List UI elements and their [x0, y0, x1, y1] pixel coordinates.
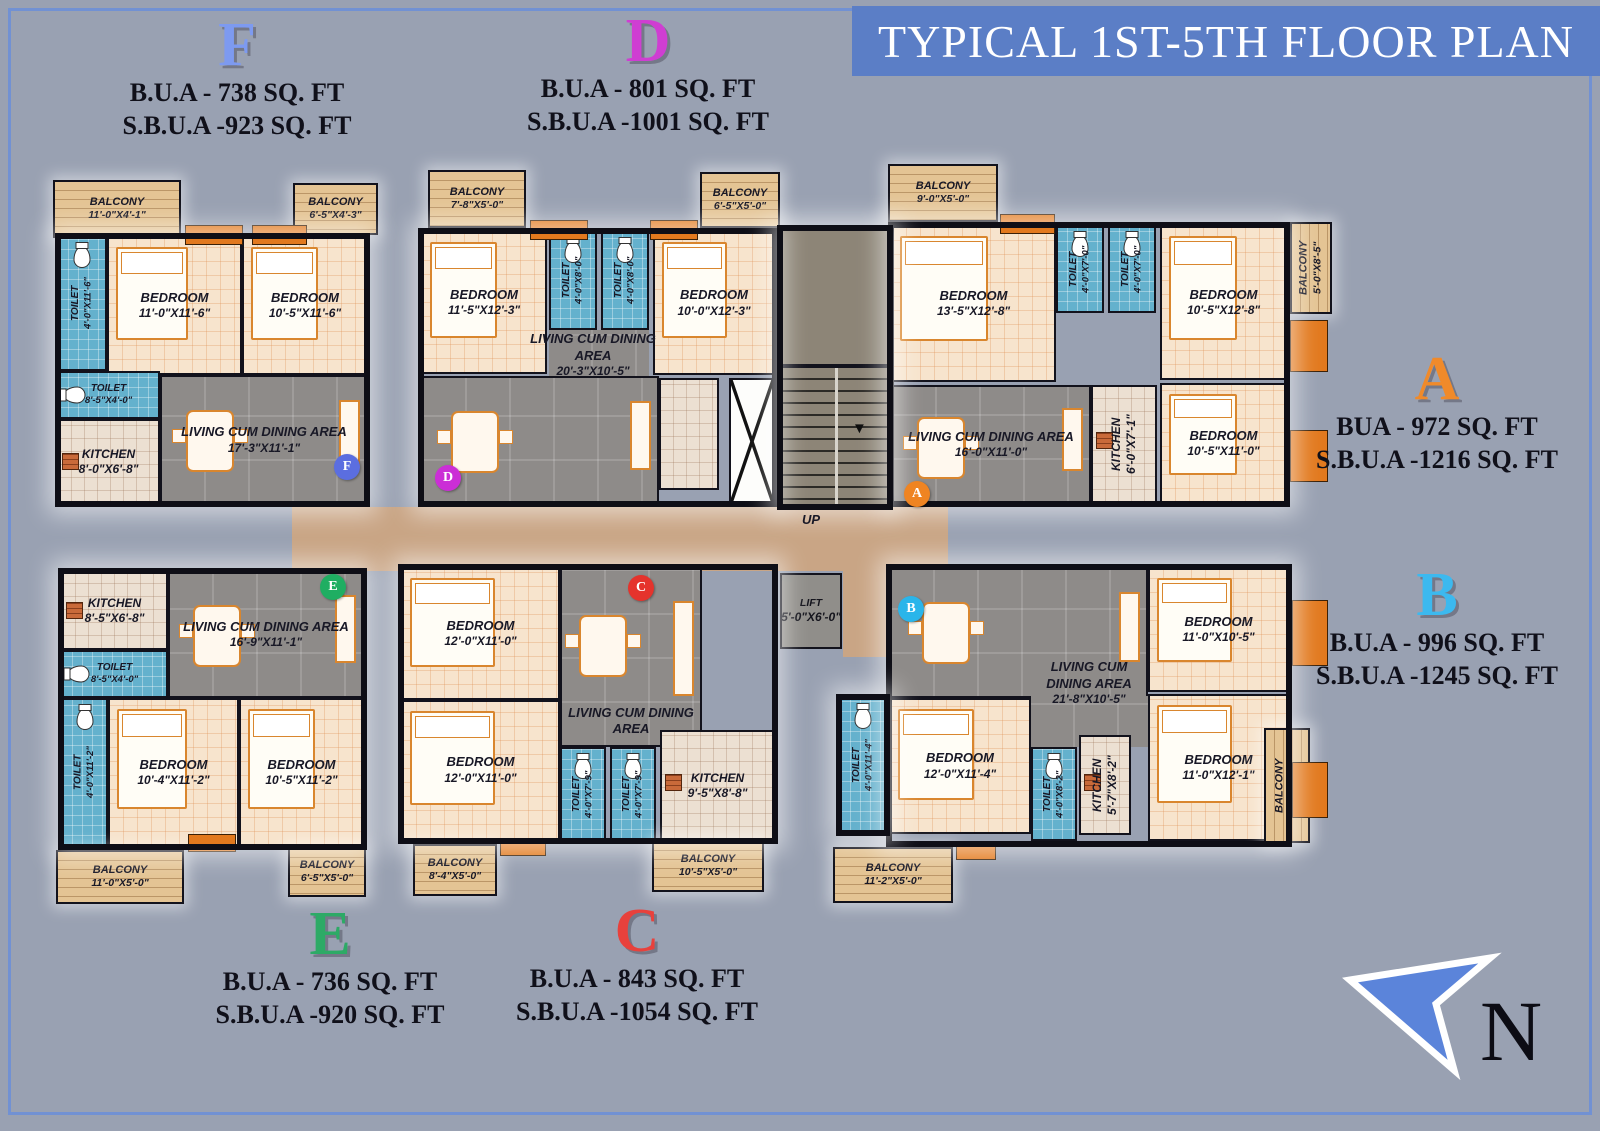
- room-label: BALCONY6'-5"X4'-3": [295, 185, 376, 233]
- room-f-balcony: BALCONY11'-0"X4'-1": [53, 180, 181, 238]
- unit-label-d: D B.U.A - 801 SQ. FT S.B.U.A -1001 SQ. F…: [518, 10, 778, 139]
- north-letter: N: [1480, 983, 1542, 1079]
- unit-sbua-f: S.B.U.A -923 SQ. FT: [107, 109, 367, 142]
- room-b-wall: [836, 694, 890, 836]
- unit-sbua-c: S.B.U.A -1054 SQ. FT: [507, 995, 767, 1028]
- page-title: TYPICAL 1ST-5TH FLOOR PLAN: [852, 6, 1600, 76]
- room-label: LIVING CUM DINING AREA20'-3"X10'-5": [523, 331, 663, 379]
- room-core-lift: LIFT5'-0"X6'-0": [780, 573, 842, 649]
- unit-marker-f: F: [334, 454, 360, 480]
- room-core-cor: [843, 569, 889, 657]
- room-label: LIFT5'-0"X6'-0": [782, 575, 840, 647]
- room-d-balcony: BALCONY6'-5"X5'-0": [700, 172, 780, 228]
- unit-letter-e: E: [200, 903, 460, 965]
- north-arrow-icon: N: [1318, 918, 1568, 1108]
- room-c-balcony: BALCONY8'-4"X5'-0": [413, 844, 497, 896]
- room-a-balcony: BALCONY9'-0"X5'-0": [888, 164, 998, 222]
- room-label: BALCONY8'-4"X5'-0": [415, 846, 495, 894]
- room-f-wall: [55, 233, 370, 507]
- unit-letter-f: F: [107, 14, 367, 76]
- unit-marker-e: E: [320, 574, 346, 600]
- unit-sbua-b: S.B.U.A -1245 SQ. FT: [1307, 659, 1567, 692]
- room-label: BALCONY10'-5"X5'-0": [654, 842, 762, 890]
- unit-sbua-e: S.B.U.A -920 SQ. FT: [200, 998, 460, 1031]
- unit-letter-d: D: [518, 10, 778, 72]
- unit-label-b: B B.U.A - 996 SQ. FT S.B.U.A -1245 SQ. F…: [1307, 564, 1567, 693]
- unit-letter-a: A: [1307, 348, 1567, 410]
- room-label: BALCONY6'-5"X5'-0": [290, 849, 364, 895]
- unit-bua-f: B.U.A - 738 SQ. FT: [107, 76, 367, 109]
- room-d-balcony: BALCONY7'-8"X5'-0": [428, 170, 526, 228]
- room-label: BALCONY11'-2"X5'-0": [835, 849, 951, 901]
- room-a-wall: [888, 222, 1290, 507]
- room-e-balcony: BALCONY11'-0"X5'-0": [56, 850, 184, 904]
- room-label: BALCONY11'-0"X5'-0": [58, 852, 182, 902]
- unit-letter-c: C: [507, 900, 767, 962]
- room-c-balcony: BALCONY10'-5"X5'-0": [652, 840, 764, 892]
- unit-marker-d: D: [435, 465, 461, 491]
- unit-bua-e: B.U.A - 736 SQ. FT: [200, 965, 460, 998]
- room-b-living-cum-dining-area: LIVING CUM DINING AREA21'-8"X10'-5": [1028, 652, 1150, 714]
- room-label: LIVING CUM DINING AREA21'-8"X10'-5": [1028, 652, 1150, 714]
- room-core-cor: [292, 507, 948, 571]
- unit-bua-d: B.U.A - 801 SQ. FT: [518, 72, 778, 105]
- unit-marker-b: B: [898, 596, 924, 622]
- room-core-up: UP: [791, 512, 831, 528]
- room-e-balcony: BALCONY6'-5"X5'-0": [288, 847, 366, 897]
- room-label: BALCONY6'-5"X5'-0": [702, 174, 778, 226]
- room-label: BALCONY5'-0"X8'-5": [1292, 224, 1330, 312]
- unit-label-f: F B.U.A - 738 SQ. FT S.B.U.A -923 SQ. FT: [107, 14, 367, 143]
- room-d-living-cum-dining-area: LIVING CUM DINING AREA20'-3"X10'-5": [523, 331, 663, 379]
- room-label: BALCONY7'-8"X5'-0": [430, 172, 524, 226]
- room-a-balcony: BALCONY5'-0"X8'-5": [1290, 222, 1332, 314]
- room-label: BALCONY9'-0"X5'-0": [890, 166, 996, 220]
- room-label: UP: [791, 512, 831, 528]
- floor-plan-canvas: TYPICAL 1ST-5TH FLOOR PLAN F B.U.A - 738…: [0, 0, 1600, 1131]
- unit-label-e: E B.U.A - 736 SQ. FT S.B.U.A -920 SQ. FT: [200, 903, 460, 1032]
- unit-bua-c: B.U.A - 843 SQ. FT: [507, 962, 767, 995]
- room-label: BALCONY11'-0"X4'-1": [55, 182, 179, 236]
- unit-sbua-d: S.B.U.A -1001 SQ. FT: [518, 105, 778, 138]
- unit-bua-a: BUA - 972 SQ. FT: [1307, 410, 1567, 443]
- room-c-living-cum-dining-area: LIVING CUM DINING AREA: [565, 698, 697, 744]
- unit-label-c: C B.U.A - 843 SQ. FT S.B.U.A -1054 SQ. F…: [507, 900, 767, 1029]
- unit-label-a: A BUA - 972 SQ. FT S.B.U.A -1216 SQ. FT: [1307, 348, 1567, 477]
- unit-letter-b: B: [1307, 564, 1567, 626]
- room-core-wall: [777, 225, 893, 510]
- room-b-balcony: BALCONY11'-2"X5'-0": [833, 847, 953, 903]
- room-label: LIVING CUM DINING AREA: [565, 698, 697, 744]
- unit-marker-c: C: [628, 575, 654, 601]
- unit-sbua-a: S.B.U.A -1216 SQ. FT: [1307, 443, 1567, 476]
- room-b-acc: [1292, 762, 1328, 818]
- unit-bua-b: B.U.A - 996 SQ. FT: [1307, 626, 1567, 659]
- room-e-wall: [58, 568, 367, 850]
- unit-marker-a: A: [904, 481, 930, 507]
